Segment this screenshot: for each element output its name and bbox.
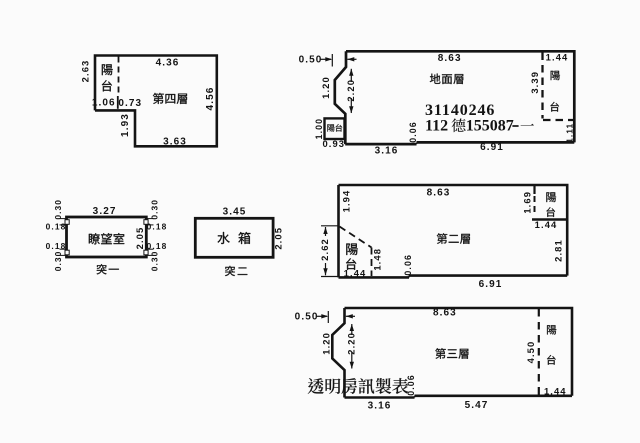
- svg-text:1.93: 1.93: [120, 113, 131, 137]
- svg-text:0.18: 0.18: [46, 241, 67, 251]
- svg-text:2.20: 2.20: [345, 79, 356, 102]
- svg-text:0.50: 0.50: [299, 55, 323, 66]
- svg-text:3.63: 3.63: [163, 137, 187, 148]
- svg-text:3.16: 3.16: [368, 401, 392, 412]
- svg-text:8.63: 8.63: [433, 308, 457, 319]
- svg-text:0.30: 0.30: [53, 199, 63, 220]
- svg-text:112: 112: [425, 117, 448, 134]
- svg-text:1.44: 1.44: [544, 386, 567, 397]
- svg-text:1.00: 1.00: [314, 118, 324, 140]
- svg-text:3.27: 3.27: [93, 206, 117, 217]
- svg-text:0.30: 0.30: [53, 251, 63, 272]
- svg-text:1.20: 1.20: [321, 332, 332, 355]
- svg-text:4.36: 4.36: [156, 57, 180, 68]
- svg-text:1.44: 1.44: [535, 219, 558, 230]
- svg-text:2.63: 2.63: [80, 60, 91, 83]
- svg-text:2.81: 2.81: [553, 239, 564, 262]
- svg-text:5.47: 5.47: [465, 400, 489, 411]
- svg-text:3.39: 3.39: [529, 71, 540, 94]
- svg-text:0.18: 0.18: [147, 241, 168, 251]
- svg-text:2.20: 2.20: [346, 332, 357, 355]
- svg-text:6.91: 6.91: [479, 279, 503, 290]
- svg-text:2.05: 2.05: [134, 227, 145, 250]
- svg-text:4.56: 4.56: [205, 87, 216, 111]
- svg-text:1.69: 1.69: [522, 191, 533, 214]
- svg-text:0.06: 0.06: [408, 121, 418, 143]
- svg-text:0.18: 0.18: [147, 222, 168, 232]
- svg-text:4.50: 4.50: [525, 341, 536, 364]
- svg-text:8.63: 8.63: [427, 187, 451, 198]
- svg-text:6.91: 6.91: [480, 142, 504, 153]
- svg-text:1.20: 1.20: [320, 76, 331, 99]
- svg-text:155087: 155087: [466, 117, 514, 134]
- svg-text:1.48: 1.48: [372, 248, 383, 271]
- svg-text:0.73: 0.73: [118, 98, 142, 109]
- svg-text:3.45: 3.45: [223, 207, 247, 218]
- svg-text:0.30: 0.30: [150, 199, 160, 220]
- svg-text:0.06: 0.06: [403, 254, 413, 276]
- svg-text:0.50: 0.50: [295, 312, 319, 323]
- svg-text:1.11: 1.11: [564, 123, 574, 143]
- svg-text:0.93: 0.93: [322, 138, 345, 149]
- svg-text:8.63: 8.63: [438, 53, 462, 64]
- svg-text:2.05: 2.05: [273, 227, 284, 250]
- svg-text:1.06: 1.06: [92, 97, 116, 108]
- svg-text:1.94: 1.94: [341, 190, 352, 213]
- svg-text:3.16: 3.16: [375, 146, 399, 157]
- svg-text:0.30: 0.30: [150, 251, 160, 272]
- svg-text:0.18: 0.18: [46, 222, 67, 232]
- svg-text:1.44: 1.44: [546, 52, 569, 63]
- svg-text:2.62: 2.62: [319, 238, 330, 261]
